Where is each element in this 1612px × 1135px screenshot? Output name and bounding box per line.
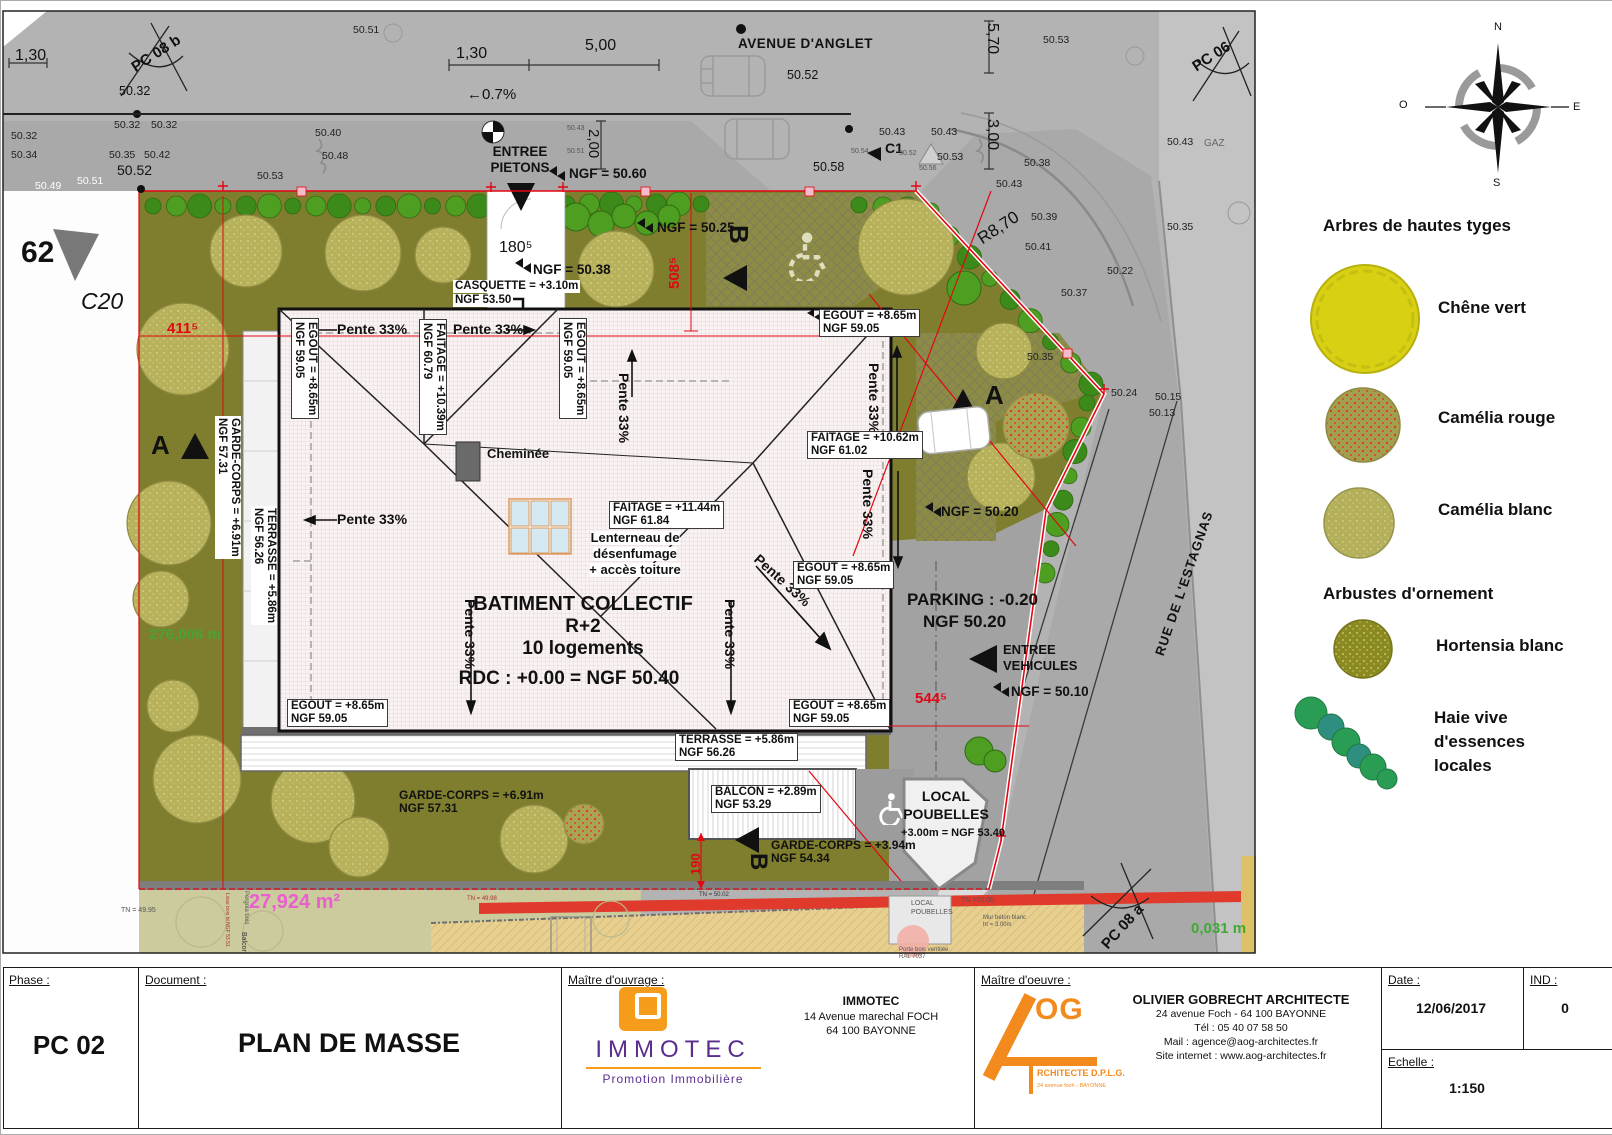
mur-beton-2: ht = 3.00m <box>983 922 1012 929</box>
legend-haie-1: Haie vive <box>1434 709 1508 728</box>
immotec-logo-rule <box>586 1067 761 1069</box>
plan-de-masse-sheet: 1,30 PC 08 b 1,30 5,00 AVENUE D'ANGLET ←… <box>0 0 1612 1135</box>
entree-vehicules-2: VEHICULES <box>1003 659 1077 673</box>
dim-544: 544⁵ <box>915 691 947 708</box>
parcel-c20: C20 <box>81 289 123 314</box>
area-0031: 0,031 m <box>1191 921 1246 938</box>
document-label: Document : <box>145 973 206 987</box>
oeuvre-addr: 24 avenue Foch - 64 100 BAYONNE <box>1156 1009 1326 1021</box>
spot-elevation: 50.42 <box>144 150 170 162</box>
legend-camelia-blanc: Camélia blanc <box>1438 501 1552 520</box>
lisse-bois: Lisse bois ht NGF 53.51 <box>224 893 230 947</box>
compass-s: S <box>1493 177 1500 189</box>
spot-elevation: 50.43 <box>879 127 905 139</box>
ouvrage-name: IMMOTEC <box>843 995 900 1008</box>
pente-mid-vert: Pente 33% <box>616 373 631 443</box>
document-title: PLAN DE MASSE <box>238 1029 460 1059</box>
immotec-logo-icon <box>619 987 667 1031</box>
pente-s2: Pente 33% <box>722 599 737 669</box>
pente-s1: Pente 33% <box>462 599 477 669</box>
porte-bois-2: RAL 7037 <box>899 954 925 961</box>
section-b-bottom: B <box>745 853 771 870</box>
pergola-bois: Pergola bois <box>242 891 249 924</box>
legend-title-arbres: Arbres de hautes tyges <box>1323 217 1511 236</box>
pente-e1: Pente 33% <box>866 363 881 433</box>
legend-chene-vert: Chêne vert <box>1438 299 1526 318</box>
spot-elevation: 50.56 <box>919 165 937 173</box>
spot-elevation: 50.37 <box>1061 288 1087 300</box>
legend-haie-2: d'essences <box>1434 733 1525 752</box>
immotec-logo-text: IMMOTEC <box>595 1037 750 1063</box>
tn-5002: TN = 50.02 <box>699 892 729 899</box>
oeuvre-site: Site internet : www.aog-architectes.fr <box>1156 1051 1327 1063</box>
parking-ngf: NGF 50.20 <box>923 613 1006 632</box>
garde-corps-west: GARDE-CORPS = +6.91mNGF 57.31 <box>215 416 241 559</box>
entree-vehicules-1: ENTREE <box>1003 643 1056 657</box>
spot-elevation: 50.38 <box>1024 158 1050 170</box>
egout-ne: EGOUT = +8.65mNGF 59.05 <box>819 309 920 337</box>
compass-n: N <box>1494 21 1502 33</box>
spot-elevation: 50.43 <box>931 127 957 139</box>
spot-elevation: 50.53 <box>937 152 963 164</box>
casquette-line2: NGF 53.50 <box>453 294 513 307</box>
tn-5000: TN =50.00 <box>961 897 994 905</box>
spot-elevation: 50.40 <box>315 128 341 140</box>
spot-elevation: 50.51 <box>77 176 103 188</box>
phase-label: Phase : <box>9 973 50 987</box>
spot-elevation: 50.53 <box>257 171 283 183</box>
site-plan-drawing <box>1 1 1257 963</box>
ouvrage-label: Maître d'ouvrage : <box>568 973 664 987</box>
local-small-1: LOCAL <box>911 900 934 908</box>
spot-elevation: 50.32 <box>11 131 37 143</box>
pente-nw: Pente 33% <box>337 322 407 337</box>
local-poubelles-2: POUBELLES <box>903 807 989 822</box>
casquette-line1: CASQUETTE = +3.10m <box>453 280 580 293</box>
entree-pietons-2: PIETONS <box>490 161 549 176</box>
spot-elevation: 50.35 <box>1167 222 1193 234</box>
spot-elevation: 50.35 <box>1027 352 1053 364</box>
spot-elevation: 50.43 <box>567 125 585 133</box>
tn-4995: TN = 49.95 <box>121 907 156 915</box>
lanterneau-2: désenfumage <box>593 547 677 561</box>
spot-elevation: 50.41 <box>1025 242 1051 254</box>
garde-corps-south: GARDE-CORPS = +6.91mNGF 57.31 <box>399 789 544 815</box>
compass-o: O <box>1399 99 1408 111</box>
local-poubelles-3: +3.00m = NGF 53.40 <box>901 827 1005 839</box>
egout-n: EGOUT = +8.65mNGF 59.05 <box>559 318 587 419</box>
spot-elevation: 50.32 <box>114 120 140 132</box>
spot-elevation: 50.51 <box>567 148 585 156</box>
spot-elevation: 50.22 <box>1107 266 1133 278</box>
local-small-2: POUBELLES <box>911 909 953 917</box>
section-a-left: A <box>151 431 170 460</box>
date-label: Date : <box>1388 973 1420 987</box>
faitage-1144: FAITAGE = +11.44mNGF 61.84 <box>609 501 724 529</box>
entree-pietons-1: ENTREE <box>493 145 548 160</box>
oeuvre-mail: Mail : agence@aog-architectes.fr <box>1164 1037 1318 1049</box>
legend-title-arbustes: Arbustes d'ornement <box>1323 585 1493 604</box>
area-276: 276,006 m <box>149 627 221 644</box>
dim-508: 508⁵ <box>667 257 684 289</box>
batiment-r2: R+2 <box>565 617 600 638</box>
terrasse-south: TERRASSE = +5.86mNGF 56.26 <box>675 733 798 761</box>
compass-e: E <box>1573 101 1580 113</box>
immotec-logo-sub: Promotion Immobilière <box>602 1073 743 1086</box>
oeuvre-name: OLIVIER GOBRECHT ARCHITECTE <box>1133 993 1350 1007</box>
ouvrage-addr2: 64 100 BAYONNE <box>826 1025 916 1037</box>
spot-elevation: 50.39 <box>1031 212 1057 224</box>
local-poubelles-1: LOCAL <box>922 789 970 804</box>
echelle-label: Echelle : <box>1388 1055 1434 1069</box>
oeuvre-tel: Tél : 05 40 07 58 50 <box>1194 1023 1287 1035</box>
spot-elevation: 50.53 <box>1043 35 1069 47</box>
balcon-label: BALCON = +2.89mNGF 53.29 <box>711 785 821 813</box>
batiment-rdc: RDC : +0.00 = NGF 50.40 <box>459 669 680 690</box>
egout-nw: EGOUT = +8.65mNGF 59.05 <box>291 318 319 419</box>
faitage-1062: FAITAGE = +10.62mNGF 61.02 <box>807 431 923 459</box>
balcon-small: Balcon <box>239 932 247 953</box>
dim-500: 5,00 <box>585 37 616 55</box>
pente-n: Pente 33% <box>453 322 523 337</box>
echelle-value: 1:150 <box>1449 1081 1485 1096</box>
dim-200: 2,00 <box>585 129 602 158</box>
dim-130-left: 1,30 <box>15 47 46 65</box>
legend-haie-3: locales <box>1434 757 1492 776</box>
spot-elevation: 50.52 <box>117 163 152 178</box>
mur-beton-1: Mur béton blanc <box>983 915 1026 922</box>
section-a-right: A <box>985 381 1004 410</box>
batiment-logements: 10 logements <box>522 639 643 660</box>
lanterneau-1: Lenterneau de <box>591 531 680 545</box>
section-b-top: B <box>724 225 753 244</box>
dim-300: 3,00 <box>983 119 1001 150</box>
pente-e2: Pente 33% <box>860 469 875 539</box>
dim-190: 190 <box>689 853 703 875</box>
ngf-5060: NGF = 50.60 <box>569 167 647 182</box>
spot-elevation: 50.15 <box>1155 392 1181 404</box>
terrasse-west: TERRASSE = +5.86mNGF 56.26 <box>251 506 277 625</box>
spot-elevation: 50.35 <box>109 150 135 162</box>
spot-elevation: 50.54 <box>851 148 869 156</box>
parcel-62: 62 <box>21 236 54 269</box>
spot-elevation: 50.24 <box>1111 388 1137 400</box>
tn-4998: TN = 49.98 <box>467 896 497 903</box>
spot-elevation: 50.49 <box>35 181 61 193</box>
dim-180: 180⁵ <box>499 239 532 257</box>
gaz-label: GAZ <box>1204 138 1225 149</box>
oeuvre-label: Maître d'oeuvre : <box>981 973 1071 987</box>
spot-elevation: 50.43 <box>1167 137 1193 149</box>
spot-elevation: 50.51 <box>353 25 379 37</box>
ngf-5038: NGF = 50.38 <box>533 263 611 278</box>
phase-value: PC 02 <box>33 1031 105 1060</box>
spot-elevation: 50.43 <box>996 179 1022 191</box>
ind-value: 0 <box>1561 1001 1569 1016</box>
date-value: 12/06/2017 <box>1416 1001 1486 1016</box>
ouvrage-addr1: 14 Avenue marechal FOCH <box>804 1011 938 1023</box>
spot-elevation: 50.48 <box>322 151 348 163</box>
ngf-5010: NGF = 50.10 <box>1011 685 1089 700</box>
slope-07: ←0.7% <box>467 87 516 104</box>
dim-411: 411⁵ <box>167 321 198 338</box>
dim-570: 5,70 <box>983 23 1001 54</box>
ind-label: IND : <box>1530 973 1557 987</box>
lanterneau-3: + accès toiture <box>589 563 680 577</box>
porte-bois-1: Porte bois ventilée <box>899 947 948 954</box>
spot-elevation: 50.58 <box>813 161 844 175</box>
egout-sw: EGOUT = +8.65mNGF 59.05 <box>287 699 388 727</box>
parking-label: PARKING : -0.20 <box>907 591 1038 610</box>
egout-e: EGOUT = +8.65mNGF 59.05 <box>793 561 894 589</box>
faitage-1039: FAITAGE = +10.39mNGF 60.79 <box>419 319 447 435</box>
spot-elevation: 50.52 <box>787 69 818 83</box>
spot-elevation: 50.32 <box>119 85 150 99</box>
spot-elevation: 50.52 <box>899 150 917 158</box>
street-avenue-anglet: AVENUE D'ANGLET <box>738 37 873 52</box>
legend-hortensia: Hortensia blanc <box>1436 637 1564 656</box>
egout-se: EGOUT = +8.65mNGF 59.05 <box>789 699 890 727</box>
spot-elevation: 50.13 <box>1149 408 1175 420</box>
dim-130-mid: 1,30 <box>456 45 487 63</box>
cheminee-label: Cheminée <box>487 447 549 461</box>
pente-w: Pente 33% <box>337 512 407 527</box>
legend-camelia-rouge: Camélia rouge <box>1438 409 1555 428</box>
spot-elevation: 50.32 <box>151 120 177 132</box>
ngf-5020: NGF = 50.20 <box>941 505 1019 520</box>
batiment-title: BATIMENT COLLECTIF <box>473 593 693 615</box>
spot-elevation: 50.34 <box>11 150 37 162</box>
area-27924: 27,924 m² <box>249 891 340 913</box>
garde-corps-394: GARDE-CORPS = +3.94mNGF 54.34 <box>771 839 916 865</box>
legend-graphics <box>1257 1 1612 963</box>
